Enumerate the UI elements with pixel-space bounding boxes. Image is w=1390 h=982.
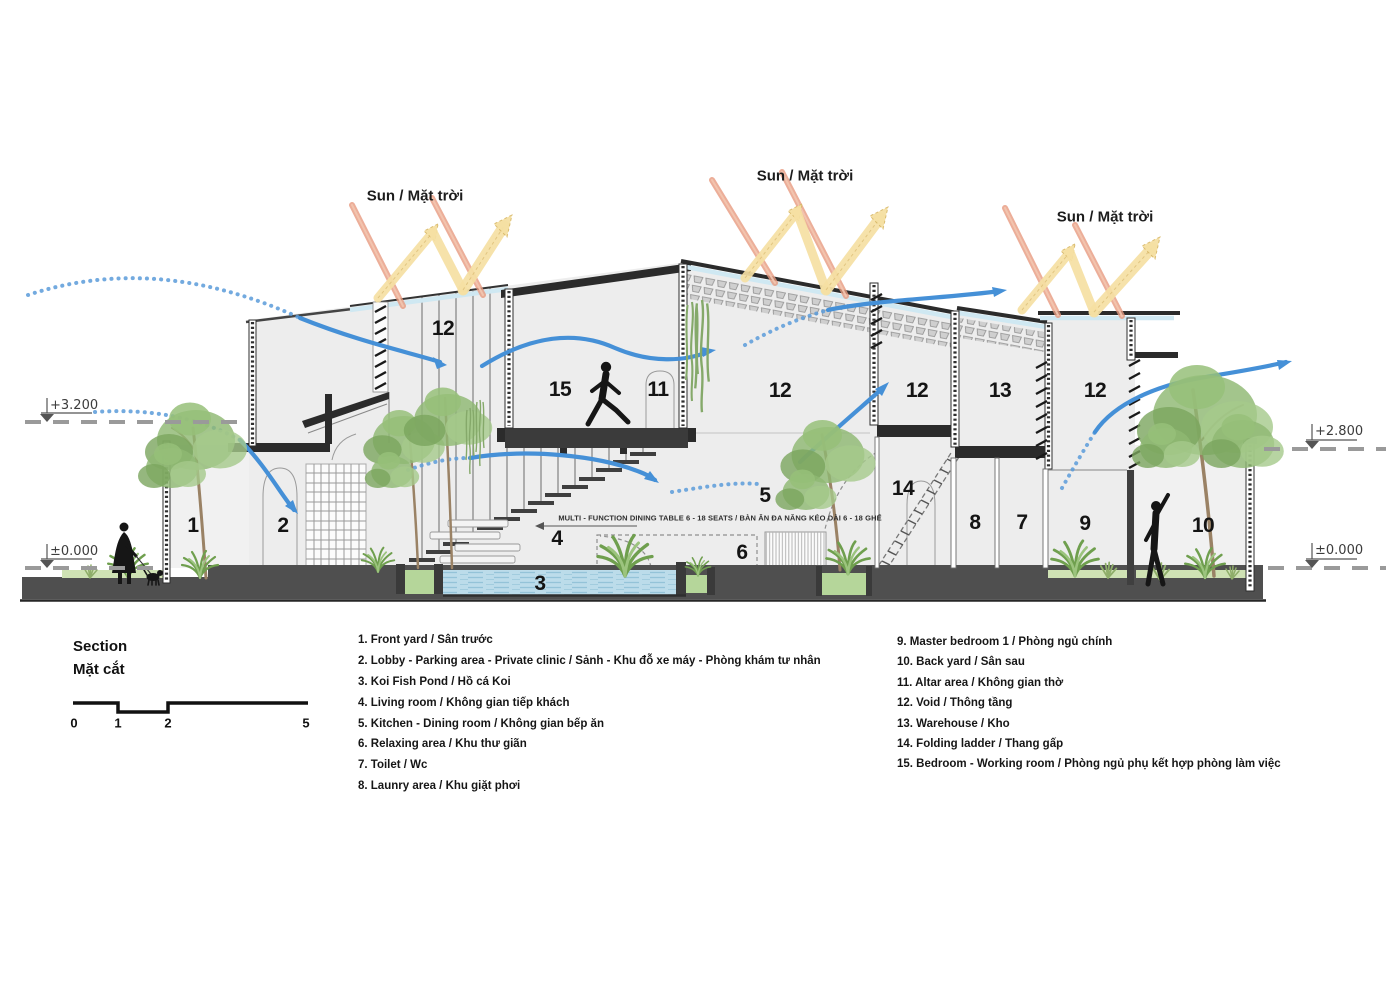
- legend-item: 2. Lobby - Parking area - Private clinic…: [358, 651, 821, 672]
- section-title-vi: Mặt cắt: [73, 661, 125, 678]
- bedroom-yard-grass: [1048, 570, 1127, 578]
- legend-right: 9. Master bedroom 1 / Phòng ngủ chính 10…: [897, 632, 1281, 775]
- room-marker-folding-ladder: 14: [892, 477, 914, 501]
- room-marker-back-yard: 10: [1192, 514, 1214, 538]
- dining-table-note: MULTI - FUNCTION DINING TABLE 6 - 18 SEA…: [558, 514, 881, 523]
- scale-bar: [73, 703, 308, 712]
- sun-label-1: Sun / Mặt trời: [367, 188, 464, 205]
- room-marker-lobby: 2: [277, 514, 288, 538]
- scale-tick-0: 0: [70, 716, 77, 731]
- scale-tick-5: 5: [302, 716, 309, 731]
- legend-item: 7. Toilet / Wc: [358, 755, 821, 776]
- lattice-screen: [306, 464, 366, 566]
- room-marker-warehouse: 13: [989, 379, 1011, 403]
- legend-left: 1. Front yard / Sân trước 2. Lobby - Par…: [358, 630, 821, 797]
- room-marker-koi-pond: 3: [534, 572, 545, 596]
- level-right-ground: ±0.000: [1315, 543, 1363, 558]
- legend-item: 14. Folding ladder / Thang gấp: [897, 734, 1281, 754]
- section-title-en: Section: [73, 638, 127, 655]
- room-marker-master-bedroom: 9: [1079, 512, 1090, 536]
- scale-tick-1: 1: [114, 716, 121, 731]
- room-marker-front-yard: 1: [187, 514, 198, 538]
- legend-item: 4. Living room / Không gian tiếp khách: [358, 693, 821, 714]
- room-marker-void-1: 12: [432, 317, 454, 341]
- room-marker-toilet: 7: [1016, 511, 1027, 535]
- legend-item: 3. Koi Fish Pond / Hồ cá Koi: [358, 672, 821, 693]
- sun-label-3: Sun / Mặt trời: [1057, 209, 1154, 226]
- scale-tick-2: 2: [164, 716, 171, 731]
- level-left-top: +3.200: [50, 398, 98, 413]
- legend-item: 12. Void / Thông tầng: [897, 693, 1281, 713]
- level-left-ground: ±0.000: [50, 544, 98, 559]
- room-marker-laundry: 8: [969, 511, 980, 535]
- room-marker-relaxing: 6: [736, 541, 747, 565]
- daybed: [765, 532, 826, 569]
- architectural-section-page: Sun / Mặt trời Sun / Mặt trời Sun / Mặt …: [0, 0, 1390, 982]
- section-drawing: [0, 0, 1390, 982]
- legend-item: 8. Launry area / Khu giặt phơi: [358, 776, 821, 797]
- legend-item: 9. Master bedroom 1 / Phòng ngủ chính: [897, 632, 1281, 652]
- room-marker-kitchen: 5: [759, 484, 770, 508]
- legend-item: 10. Back yard / Sân sau: [897, 652, 1281, 672]
- sun-label-2: Sun / Mặt trời: [757, 168, 854, 185]
- legend-item: 6. Relaxing area / Khu thư giãn: [358, 734, 821, 755]
- room-marker-living-room: 4: [551, 527, 562, 551]
- room-marker-void-4: 12: [1084, 379, 1106, 403]
- room-marker-void-2: 12: [769, 379, 791, 403]
- level-right-top: +2.800: [1315, 424, 1363, 439]
- legend-item: 5. Kitchen - Dining room / Không gian bế…: [358, 714, 821, 735]
- room-marker-void-3: 12: [906, 379, 928, 403]
- legend-item: 11. Altar area / Không gian thờ: [897, 673, 1281, 693]
- legend-item: 15. Bedroom - Working room / Phòng ngủ p…: [897, 754, 1281, 774]
- room-marker-altar: 11: [647, 378, 668, 402]
- room-marker-bedroom-working: 15: [549, 378, 571, 402]
- legend-item: 1. Front yard / Sân trước: [358, 630, 821, 651]
- legend-item: 13. Warehouse / Kho: [897, 714, 1281, 734]
- upper-floor-slab: [505, 428, 688, 448]
